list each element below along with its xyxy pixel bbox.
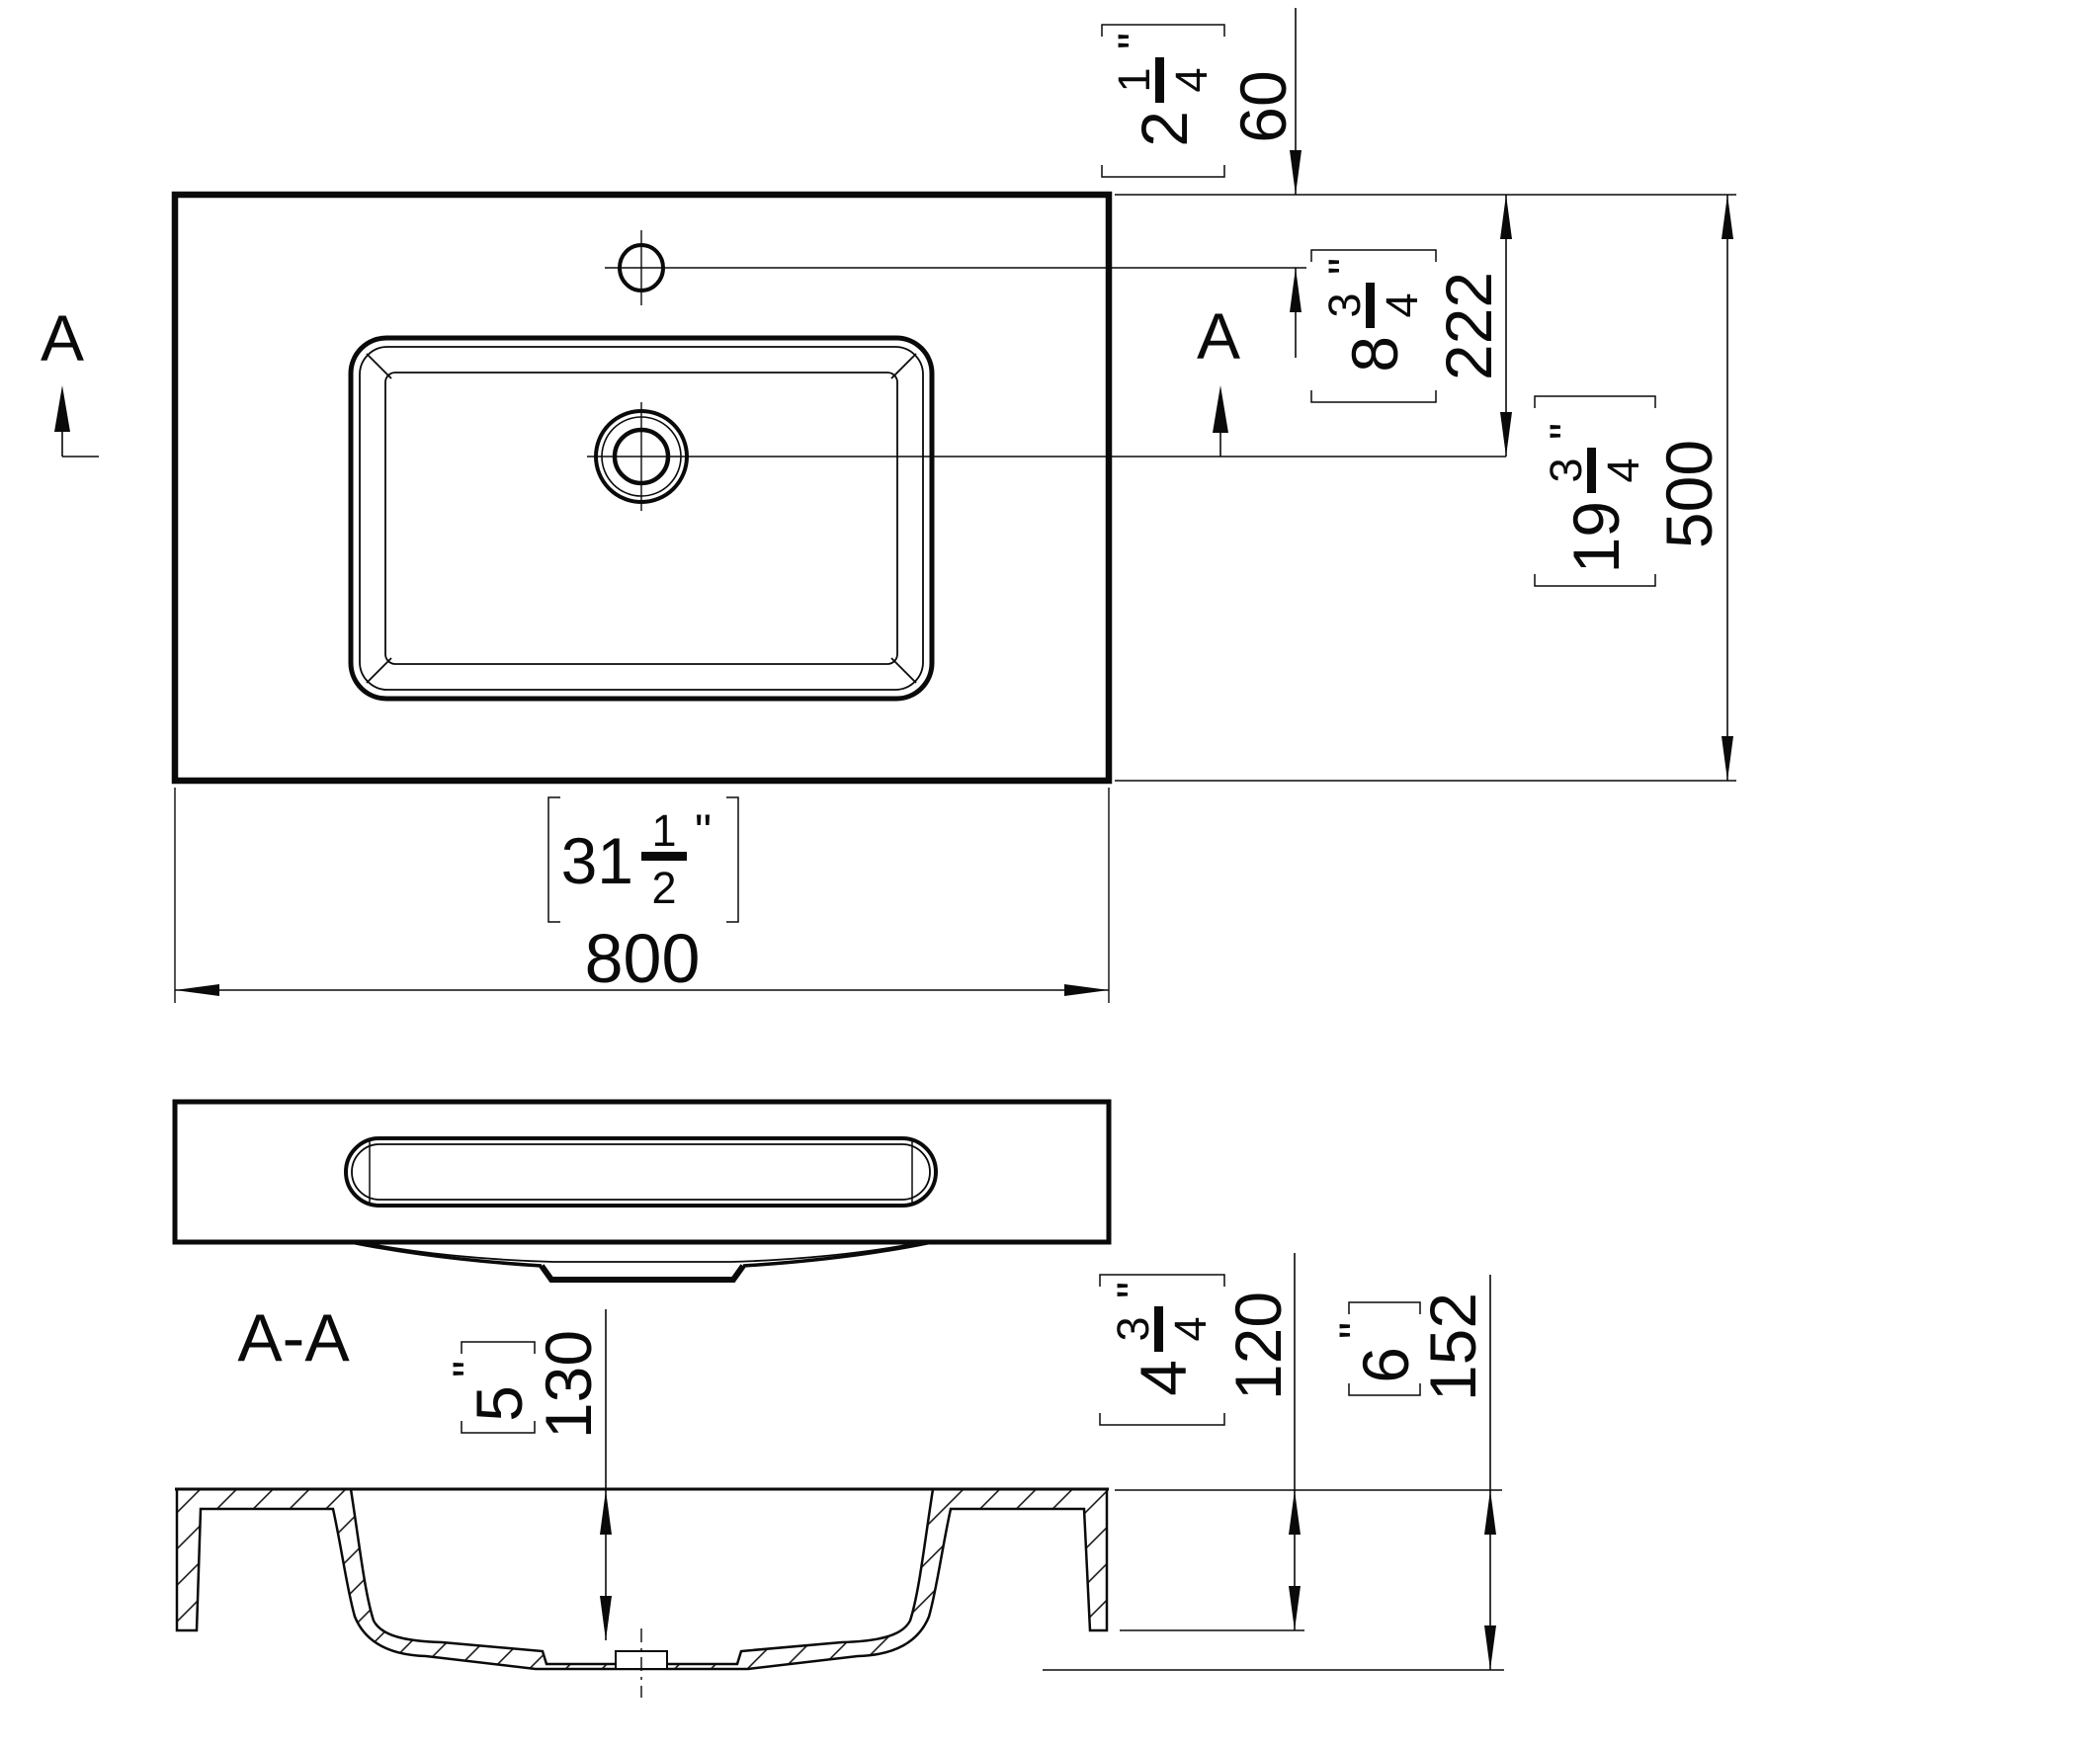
fraction-bar [641, 852, 687, 861]
technical-drawing-canvas: A A 2 1 4 " 60 8 [0, 0, 2100, 1750]
dim-222-inch-whole: 8 [1338, 336, 1411, 373]
inch-mark: " [1320, 258, 1373, 275]
dim-60-frac-den: 4 [1166, 67, 1217, 92]
dim-500-frac-num: 3 [1541, 458, 1591, 482]
dim-120-frac-den: 4 [1165, 1316, 1216, 1341]
dim-222-mm-label: 222 [1432, 272, 1505, 380]
dim-500-mm-value: 500 [1652, 440, 1725, 548]
dim-800-frac-den: 2 [651, 863, 676, 913]
dim-60-inch-whole: 2 [1128, 111, 1201, 147]
fraction-bar [1154, 1306, 1163, 1352]
dim-120-inch-whole: 4 [1127, 1360, 1200, 1396]
dim-152-mm-label: 152 [1416, 1292, 1489, 1401]
drawing-sheet: A A 2 1 4 " 60 8 [0, 0, 2100, 1750]
dim-500-inch-whole: 19 [1559, 501, 1633, 573]
dim-800-mm-value: 800 [585, 920, 701, 997]
dim-130-inch-whole: 5 [462, 1385, 536, 1422]
dim-500-frac-den: 4 [1598, 458, 1648, 482]
dim-500-mm-label: 500 [1652, 440, 1725, 548]
section-marker-left-label: A [41, 301, 84, 375]
inch-mark: " [695, 806, 712, 859]
dim-800-inch-whole: 31 [561, 824, 633, 897]
dim-222-frac-den: 4 [1377, 292, 1427, 317]
dim-130-mm-value: 130 [532, 1330, 605, 1439]
dim-120-mm-label: 120 [1221, 1292, 1295, 1400]
dim-130-mm-label: 130 [532, 1330, 605, 1439]
fraction-bar [1155, 57, 1164, 103]
dim-222-mm-value: 222 [1432, 272, 1505, 380]
inch-mark: " [1542, 423, 1594, 440]
fraction-bar [1587, 448, 1596, 493]
dim-800-frac-num: 1 [651, 805, 676, 856]
dim-152-mm-value: 152 [1416, 1292, 1489, 1401]
dim-60-frac-num: 1 [1109, 67, 1159, 92]
inch-mark: " [1110, 33, 1162, 49]
dim-60-mm-label: 60 [1226, 70, 1300, 142]
dim-222-frac-num: 3 [1319, 292, 1370, 317]
sheet-background [0, 0, 2100, 1750]
dim-120-frac-num: 3 [1108, 1316, 1158, 1341]
section-marker-right-label: A [1197, 299, 1240, 373]
inch-mark: " [445, 1361, 497, 1377]
section-title: A-A [237, 1300, 350, 1375]
dim-60-mm-value: 60 [1226, 70, 1300, 142]
dim-152-inch-whole: 6 [1349, 1347, 1422, 1383]
dim-120-mm-value: 120 [1221, 1292, 1295, 1400]
inch-mark: " [1331, 1322, 1384, 1339]
inch-mark: " [1109, 1282, 1161, 1298]
fraction-bar [1366, 283, 1375, 328]
